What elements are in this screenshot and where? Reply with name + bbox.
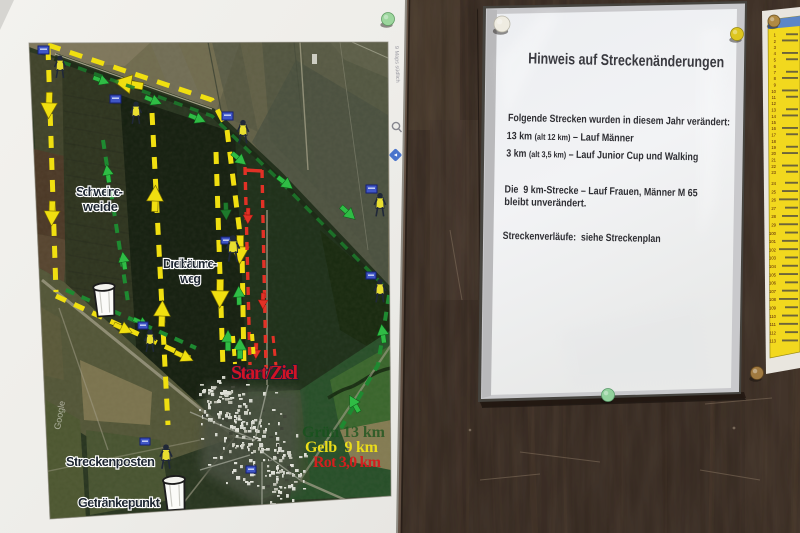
- svg-text:21: 21: [771, 158, 776, 163]
- svg-text:14: 14: [771, 114, 776, 119]
- svg-text:Getränkepunkt: Getränkepunkt: [78, 495, 161, 510]
- svg-text:12: 12: [771, 101, 776, 106]
- svg-text:104: 104: [769, 264, 777, 269]
- svg-text:103: 103: [769, 256, 777, 261]
- svg-text:18: 18: [771, 139, 776, 144]
- svg-text:20: 20: [771, 151, 776, 156]
- svg-text:28: 28: [771, 214, 776, 219]
- svg-text:9 Maps südlich: 9 Maps südlich: [393, 46, 400, 83]
- svg-text:Schweine-: Schweine-: [76, 184, 123, 199]
- svg-text:29: 29: [771, 223, 776, 228]
- svg-text:100: 100: [769, 231, 777, 236]
- svg-text:110: 110: [769, 314, 776, 319]
- svg-text:108: 108: [769, 297, 777, 302]
- svg-text:Start/Ziel: Start/Ziel: [231, 362, 298, 384]
- svg-text:15: 15: [771, 120, 776, 125]
- svg-text:105: 105: [769, 272, 777, 277]
- svg-text:Streckenposten: Streckenposten: [66, 454, 155, 469]
- svg-text:10: 10: [771, 89, 776, 94]
- svg-text:weide: weide: [82, 199, 118, 214]
- svg-text:111: 111: [770, 322, 777, 327]
- svg-text:106: 106: [769, 281, 777, 286]
- svg-text:27: 27: [771, 206, 776, 211]
- svg-text:13 km (alt 12 km) – Lauf Männe: 13 km (alt 12 km) – Lauf Männer: [507, 130, 634, 145]
- svg-text:11: 11: [772, 95, 777, 100]
- svg-text:112: 112: [769, 330, 776, 335]
- svg-text:102: 102: [769, 247, 777, 252]
- svg-text:25: 25: [771, 189, 776, 194]
- svg-text:Dreibäume-: Dreibäume-: [163, 257, 217, 271]
- svg-text:19: 19: [771, 145, 776, 150]
- svg-text:109: 109: [769, 306, 777, 311]
- svg-text:113: 113: [769, 339, 776, 344]
- svg-text:101: 101: [769, 239, 777, 244]
- svg-text:13: 13: [771, 108, 776, 113]
- svg-text:bleibt unverändert.: bleibt unverändert.: [504, 196, 586, 210]
- svg-text:24: 24: [771, 181, 776, 186]
- svg-text:22: 22: [771, 164, 776, 169]
- svg-text:weg: weg: [179, 272, 201, 286]
- svg-text:16: 16: [771, 126, 776, 131]
- svg-text:17: 17: [771, 133, 776, 138]
- svg-text:107: 107: [769, 289, 777, 294]
- svg-text:26: 26: [771, 198, 776, 203]
- svg-text:Rot 3,0 km: Rot 3,0 km: [313, 454, 382, 471]
- svg-text:23: 23: [771, 170, 776, 175]
